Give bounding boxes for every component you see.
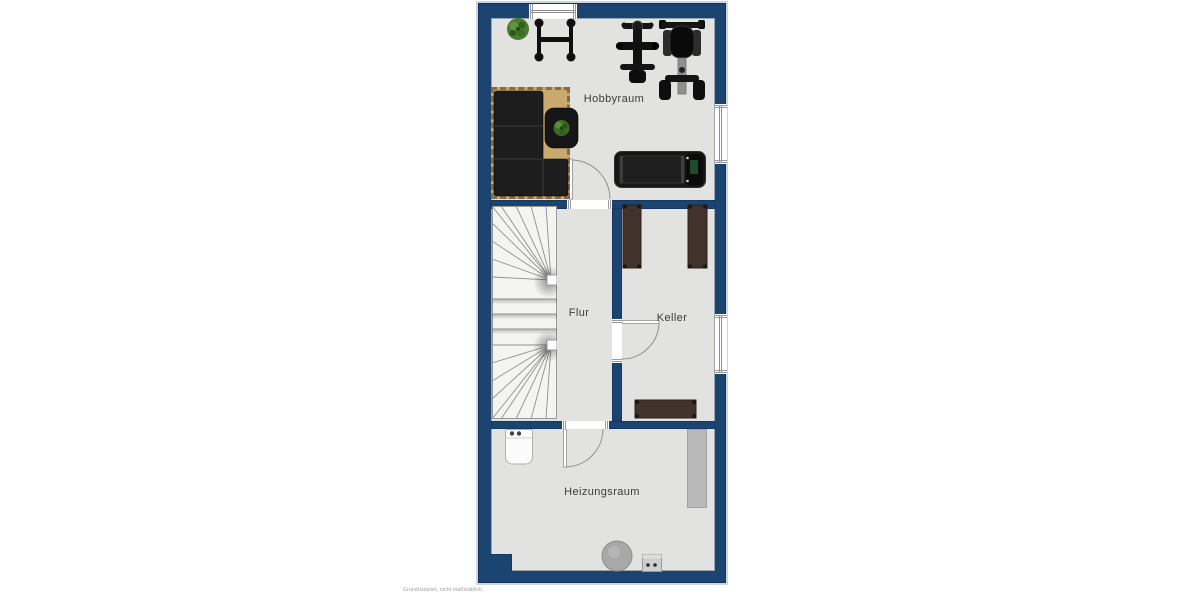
window-tick <box>715 160 727 163</box>
door-threshold-heizungsraum <box>562 421 609 429</box>
floor-plan: Hobbyraum Flur Keller Heizungsraum <box>478 3 726 583</box>
shelf-icon <box>634 399 697 419</box>
floor-plan-page: Hobbyraum Flur Keller Heizungsraum Grund… <box>0 0 1200 600</box>
gym-machine-icon <box>616 18 659 83</box>
shelf-icon <box>622 204 642 269</box>
washing-machine-icon <box>505 429 533 465</box>
window-tick <box>715 105 727 108</box>
room-label-keller: Keller <box>657 312 688 324</box>
radiator-icon <box>687 429 707 508</box>
window-glazing <box>719 316 722 372</box>
treadmill-icon <box>614 151 706 188</box>
disclaimer-text: Grundrissplan, nicht maßstäblich <box>403 587 482 593</box>
window-glazing <box>531 10 575 13</box>
barbell-rack-icon <box>532 17 578 63</box>
wall-notch <box>491 554 512 571</box>
coffee-table-icon <box>543 106 580 150</box>
threshold-tick <box>563 421 566 429</box>
window-icon <box>715 104 727 164</box>
threshold-tick <box>612 359 622 362</box>
room-label-hobbyraum: Hobbyraum <box>584 93 644 105</box>
threshold-tick <box>612 320 622 323</box>
window-tick <box>715 315 727 318</box>
wall-flur-keller <box>612 208 622 421</box>
stairs-icon <box>492 206 557 419</box>
window-glazing <box>719 106 722 162</box>
door-icon <box>567 158 612 209</box>
shelf-icon <box>687 204 708 269</box>
utility-box-icon <box>642 554 662 572</box>
plant-icon <box>505 16 531 42</box>
boiler-icon <box>601 540 633 572</box>
window-tick <box>715 370 727 373</box>
door-icon <box>562 429 609 470</box>
door-threshold-keller <box>612 319 622 363</box>
room-label-heizungsraum: Heizungsraum <box>564 486 640 498</box>
room-label-flur: Flur <box>569 307 590 319</box>
window-icon <box>715 314 727 374</box>
threshold-tick <box>605 421 608 429</box>
exercise-bike-icon <box>659 18 705 102</box>
